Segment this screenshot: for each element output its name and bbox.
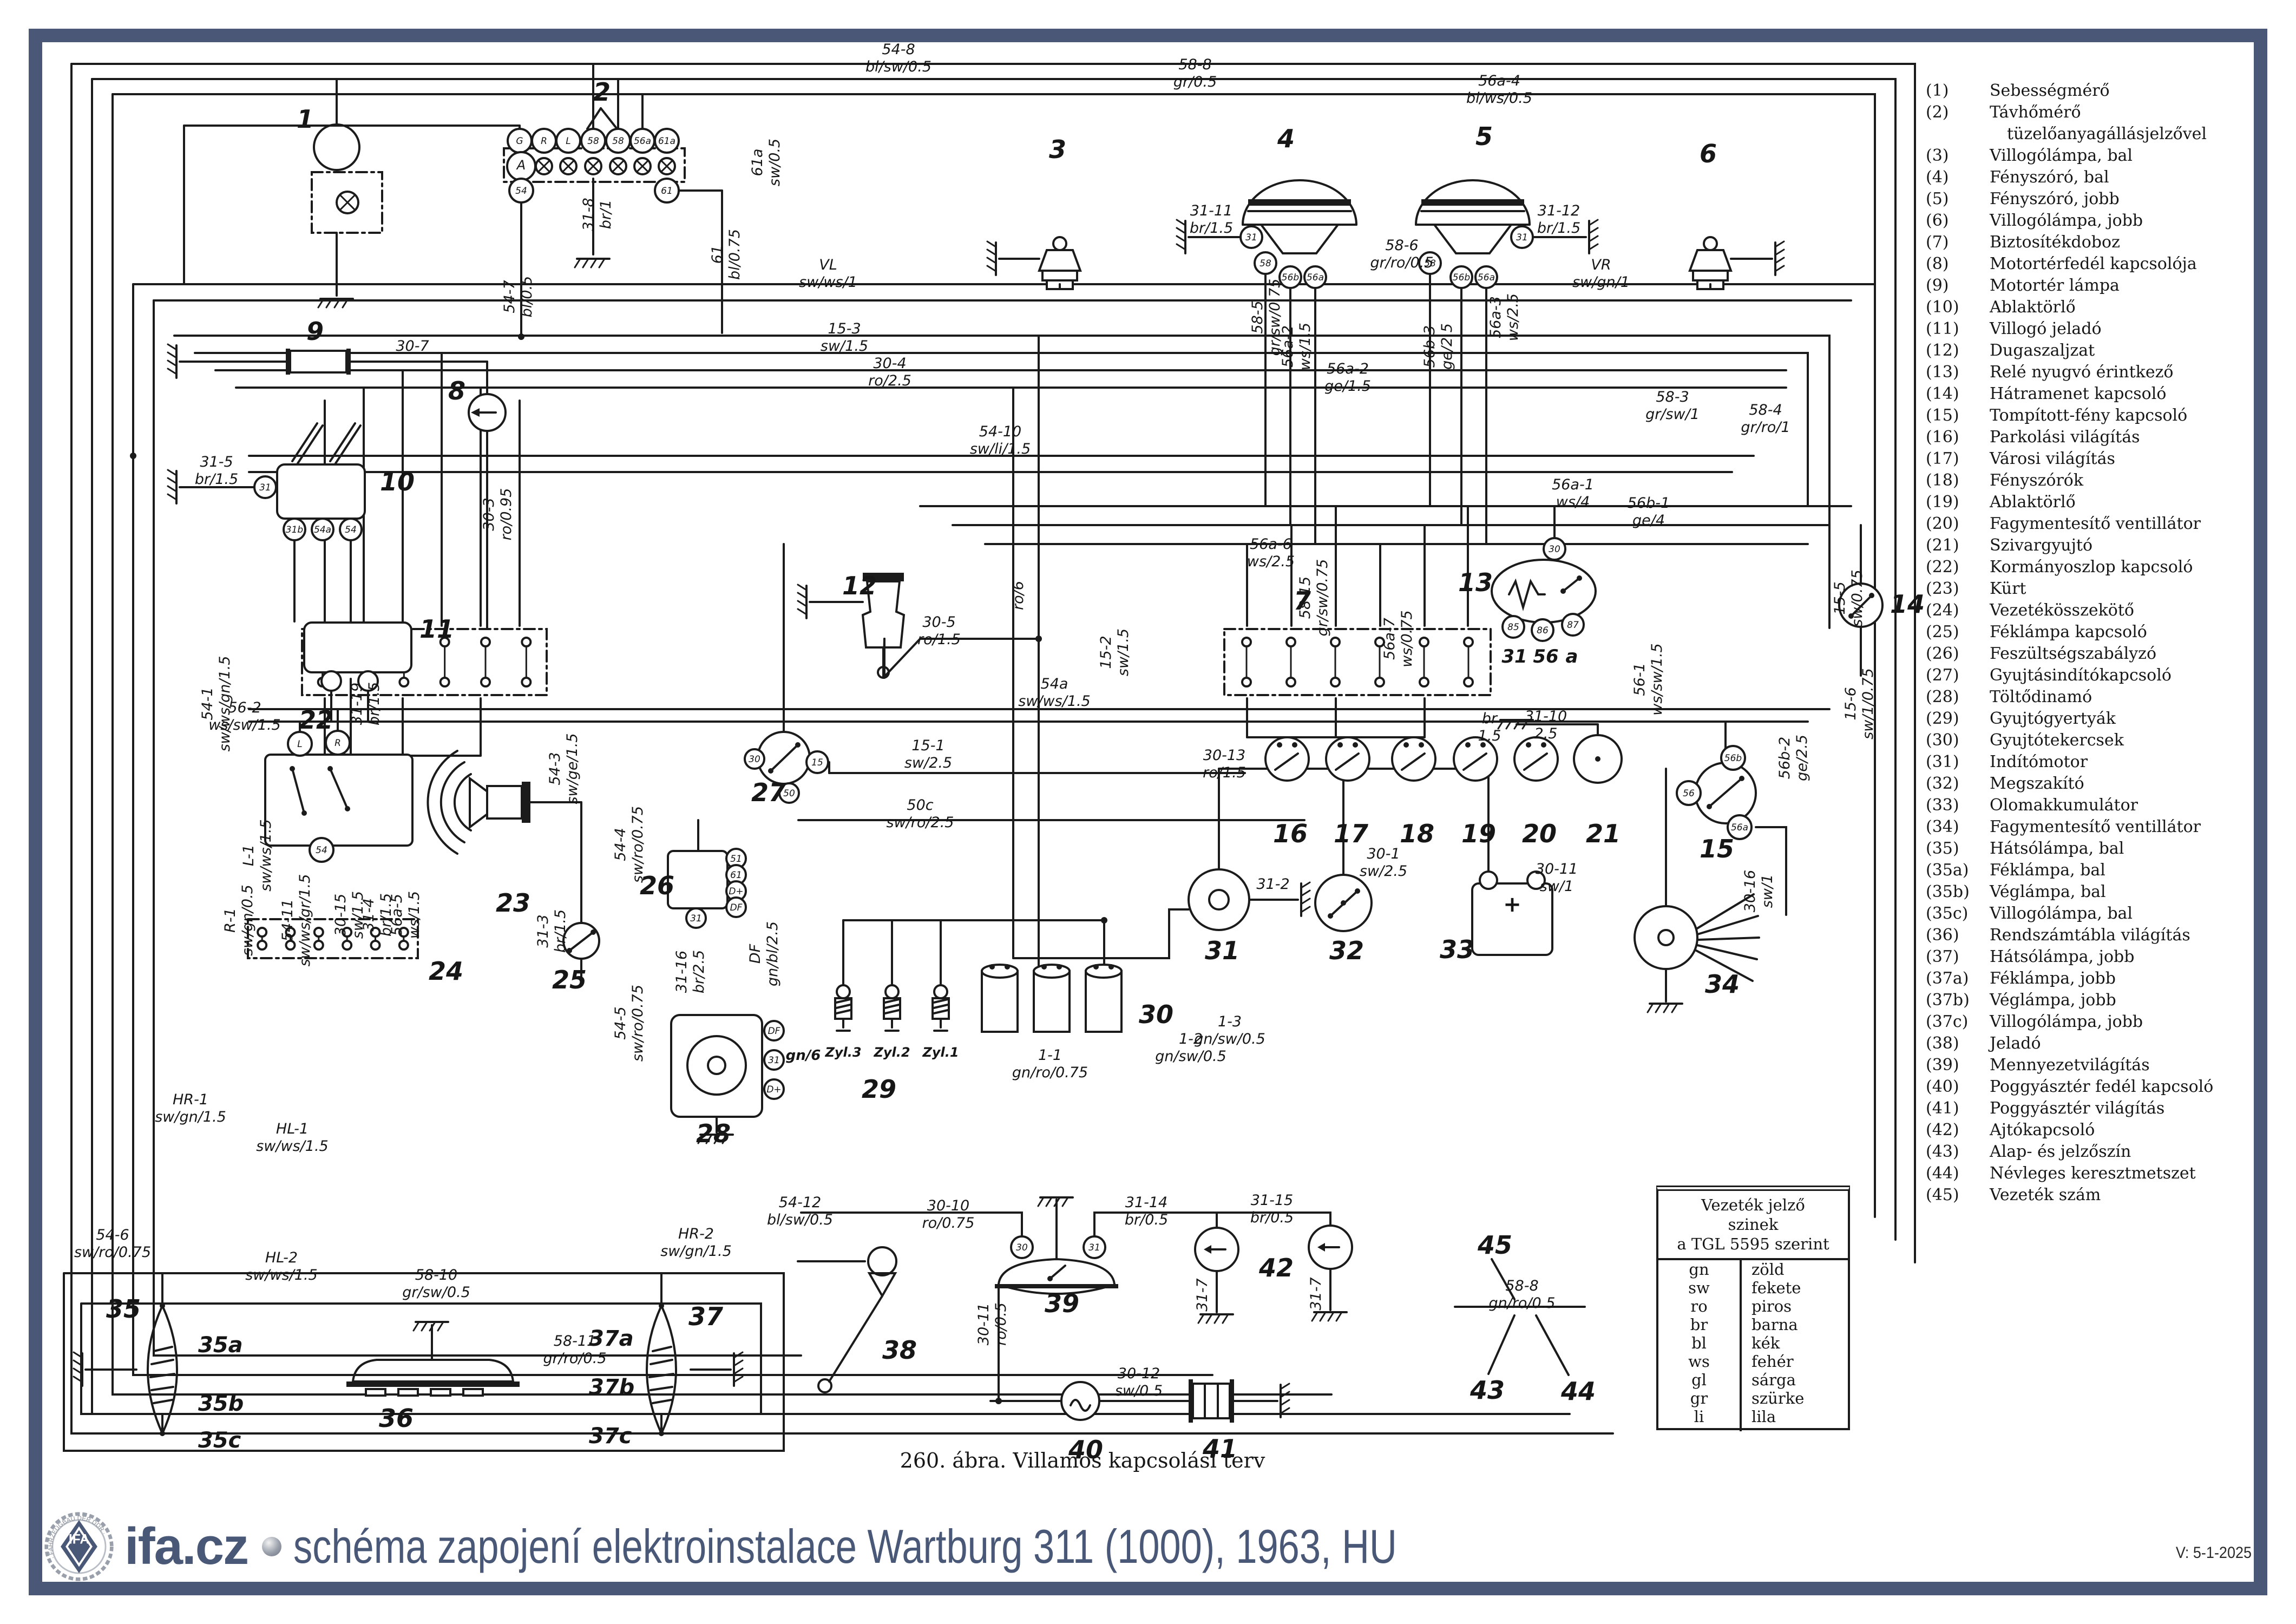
wire-label: 58-3gr/sw/1: [1645, 389, 1700, 423]
wire-label: 15-3sw/1.5: [821, 320, 868, 355]
component-10: 3131b54a5410: [180, 423, 415, 621]
legend-item-number: (35c): [1926, 903, 1990, 925]
legend-item-number: (31): [1926, 751, 1990, 773]
svg-text:ws/2.5: ws/2.5: [1505, 293, 1521, 341]
component-number: 10: [380, 467, 415, 496]
svg-text:ro/0.95: ro/0.95: [498, 488, 515, 541]
svg-text:br/1: br/1: [598, 200, 614, 230]
svg-text:58-6: 58-6: [1385, 237, 1418, 254]
wire-label: 61bl/0.75: [709, 229, 743, 280]
svg-text:gr/sw/1: gr/sw/1: [1645, 406, 1700, 423]
svg-text:br/0.5: br/0.5: [1250, 1209, 1294, 1226]
svg-text:ro/6: ro/6: [1010, 581, 1027, 610]
legend-item-label: Alap- és jelzőszín: [1990, 1141, 2261, 1163]
legend-item-label: Vezeték szám: [1990, 1184, 2261, 1206]
legend-item-number: (26): [1926, 643, 1990, 665]
component-36: 36: [346, 1325, 520, 1433]
svg-text:VL: VL: [819, 257, 837, 273]
legend-item-number: (28): [1926, 686, 1990, 708]
component-17: 17: [1326, 737, 1369, 848]
legend-item-label: Fagymentesítő ventillátor: [1990, 513, 2261, 535]
wire-label: 54-8bl/sw/0.5: [865, 41, 931, 75]
wire-label: 58-6gr/ro/0.5: [1370, 237, 1434, 271]
component-legend: (1)Sebességmérő(2)Távhőmérőtüzelőanyagál…: [1926, 80, 2261, 1206]
legend-item: (2)Távhőmérő: [1926, 102, 2261, 123]
component-15: 5656b56a15: [1677, 746, 1756, 863]
svg-text:30-13: 30-13: [1203, 747, 1245, 764]
component-number: 24: [429, 957, 463, 986]
component-number: 45: [1477, 1230, 1512, 1260]
legend-item-number: (25): [1926, 621, 1990, 643]
legend-item-number: (34): [1926, 816, 1990, 838]
component-6: 6: [1690, 139, 1772, 289]
svg-text:sw/ws/1: sw/ws/1: [799, 274, 857, 291]
svg-text:2.5: 2.5: [1534, 725, 1558, 742]
wire-label: 1-3gn/sw/0.5: [1194, 1013, 1265, 1047]
component-number: 35: [106, 1294, 141, 1324]
legend-item-label: Fagymentesítő ventillátor: [1990, 816, 2261, 838]
wire-label: 54-6sw/ro/0.75: [74, 1227, 151, 1261]
footer-bullet-icon: [262, 1537, 281, 1556]
component-22: LR5422: [265, 679, 412, 862]
legend-item: (15)Tompított-fény kapcsoló: [1926, 405, 2261, 427]
component-27: 30155027: [745, 544, 829, 807]
wire-label: 30-13ro/1.5: [1203, 747, 1246, 781]
wire-label: VLsw/ws/1: [799, 257, 857, 291]
color-abbrev: gn: [1658, 1260, 1740, 1279]
legend-item: (7)Biztosítékdoboz: [1926, 232, 2261, 253]
component-number: 37: [688, 1302, 723, 1331]
svg-text:56a-2: 56a-2: [1280, 325, 1296, 368]
wire: [801, 1213, 1022, 1236]
legend-item-label: Biztosítékdoboz: [1990, 232, 2261, 253]
ifa-logo-text: IFA: [69, 1532, 89, 1547]
wire-label: 56a-2ge/1.5: [1324, 361, 1371, 395]
component-number: 9: [306, 317, 324, 346]
component-number: 38: [882, 1335, 917, 1365]
svg-text:sw/ro/0.75: sw/ro/0.75: [629, 985, 646, 1062]
color-name: fehér: [1740, 1352, 1848, 1371]
legend-item-label: Ablaktörlő: [1990, 492, 2261, 513]
terminal-label: 54: [316, 845, 327, 856]
component-number: 27: [751, 778, 786, 807]
legend-item: (20)Fagymentesítő ventillátor: [1926, 513, 2261, 535]
terminal-label: 87: [1567, 620, 1579, 631]
wire-label: 58-5gr/sw/0.75: [1249, 279, 1283, 356]
legend-item-label: tüzelőanyagállásjelzővel: [2007, 123, 2261, 145]
svg-text:VR: VR: [1591, 257, 1611, 273]
legend-item-number: (45): [1926, 1184, 1990, 1206]
svg-text:1-3: 1-3: [1218, 1013, 1242, 1030]
svg-text:31-7: 31-7: [1194, 1278, 1211, 1311]
legend-item-number: (30): [1926, 730, 1990, 751]
svg-text:56a-7: 56a-7: [1381, 618, 1398, 660]
wire-label: 56-1ws/sw/1.5: [1631, 643, 1665, 715]
figure-caption: 260. ábra. Villamos kapcsolási terv: [834, 1449, 1331, 1472]
wire-label: 31-7: [1194, 1278, 1211, 1311]
component-number: 42: [1258, 1253, 1294, 1282]
svg-text:56b-1: 56b-1: [1628, 495, 1670, 512]
component-number: 35c: [198, 1428, 241, 1453]
svg-text:gr/sw/0.5: gr/sw/0.5: [402, 1284, 470, 1301]
svg-text:HL-1: HL-1: [276, 1121, 309, 1137]
svg-text:30-11: 30-11: [975, 1303, 992, 1345]
terminal-label: L: [566, 136, 570, 147]
color-name: sárga: [1740, 1371, 1848, 1389]
terminal-label: 54: [515, 186, 527, 197]
wire-label: 58-4gr/ro/1: [1741, 402, 1790, 436]
component-text: Zyl.3: [824, 1045, 861, 1060]
wire-label: L-1sw/ws/1.5: [240, 819, 274, 891]
legend-item-label: Poggyásztér világítás: [1990, 1098, 2261, 1119]
legend-item: (26)Feszültségszabályzó: [1926, 643, 2261, 665]
terminal-label: 31b: [286, 525, 303, 535]
wall-ground-icon: [1301, 882, 1310, 916]
legend-item-number: (18): [1926, 470, 1990, 492]
legend-item: (9)Motortér lámpa: [1926, 275, 2261, 297]
component-35b: 35b: [198, 1391, 244, 1416]
scanned-page: 1GRL585856a61aA546123315856b56a45856b56a…: [0, 0, 2296, 1624]
footer-site[interactable]: ifa.cz: [124, 1517, 248, 1576]
terminal-label: 56b: [1453, 272, 1470, 283]
component-number: 3: [1049, 135, 1066, 164]
svg-text:sw/ro/0.75: sw/ro/0.75: [74, 1244, 151, 1261]
svg-text:58-11: 58-11: [554, 1333, 596, 1350]
svg-text:HR-2: HR-2: [678, 1226, 714, 1242]
wire-label: 50csw/ro/2.5: [887, 797, 954, 831]
component-37: 37: [647, 1302, 731, 1436]
component-number: 29: [862, 1075, 896, 1104]
color-name: kék: [1740, 1334, 1848, 1352]
svg-text:br/1.5: br/1.5: [552, 909, 569, 953]
svg-text:31-3: 31-3: [535, 914, 552, 947]
wire-label: VRsw/gn/1: [1572, 257, 1630, 291]
svg-text:54-10: 54-10: [979, 423, 1021, 440]
legend-item: (45)Vezeték szám: [1926, 1184, 2261, 1206]
terminal-label: 51: [730, 854, 742, 865]
legend-item: (37c)Villogólámpa, jobb: [1926, 1011, 2261, 1033]
legend-item-label: Tompított-fény kapcsoló: [1990, 405, 2261, 427]
wire-label: 30-11ro/0.5: [975, 1302, 1009, 1346]
svg-text:sw/2.5: sw/2.5: [904, 755, 952, 771]
terminal-label: L: [297, 739, 302, 750]
wall-ground-icon: [987, 241, 996, 275]
wire-label: 30-1sw/2.5: [1360, 846, 1407, 880]
component-number: 35a: [198, 1333, 243, 1358]
wire-label: 30-5ro/1.5: [917, 614, 961, 648]
wire-label: R-1sw/gn/0.5: [222, 885, 256, 956]
legend-item: (3)Villogólámpa, bal: [1926, 145, 2261, 167]
color-table-row: lilila: [1658, 1407, 1848, 1426]
terminal-label: 56a: [1478, 272, 1495, 283]
legend-item: (44)Névleges keresztmetszet: [1926, 1163, 2261, 1184]
wire-label: 56b-1ge/4: [1628, 495, 1670, 529]
wire-label: 30-12sw/0.5: [1115, 1365, 1163, 1399]
component-18: 18: [1392, 737, 1435, 848]
legend-item-number: (5): [1926, 188, 1990, 210]
component-number: 25: [552, 965, 587, 994]
legend-item-label: Hátsólámpa, bal: [1990, 838, 2261, 860]
color-name: barna: [1740, 1315, 1848, 1334]
svg-text:15-1: 15-1: [911, 737, 944, 754]
svg-text:15-6: 15-6: [1842, 687, 1859, 720]
table-title-line: a TGL 5595 szerint: [1658, 1234, 1848, 1254]
legend-item-label: Féklámpa kapcsoló: [1990, 621, 2261, 643]
component-number: 20: [1522, 819, 1557, 848]
wire-label: 31-5br/1.5: [195, 454, 238, 488]
wire-label: 30-7: [396, 338, 429, 355]
svg-text:sw/ws/gr/1.5: sw/ws/gr/1.5: [297, 874, 313, 967]
legend-item-label: Városi világítás: [1990, 448, 2261, 470]
legend-item-number: (15): [1926, 405, 1990, 427]
wire-label: 56a-4bl/ws/0.5: [1466, 73, 1532, 107]
svg-text:56a-6: 56a-6: [1250, 536, 1292, 553]
wall-ground-icon: [1177, 220, 1185, 253]
legend-item-number: (24): [1926, 600, 1990, 621]
terminal-x: [322, 671, 341, 691]
legend-item: (1)Sebességmérő: [1926, 80, 2261, 102]
component-8: 8: [448, 362, 506, 629]
wire-label: 54-12bl/sw/0.5: [767, 1194, 833, 1228]
component-39: 303139: [995, 1200, 1118, 1318]
component-number: 15: [1700, 834, 1734, 863]
svg-text:bl/sw/0.5: bl/sw/0.5: [767, 1212, 833, 1228]
legend-item: (35)Hátsólámpa, bal: [1926, 838, 2261, 860]
svg-text:31-4: 31-4: [360, 898, 377, 931]
svg-text:56-1: 56-1: [1631, 663, 1648, 696]
table-title-line: szinek: [1658, 1215, 1848, 1234]
svg-text:sw/1.5: sw/1.5: [821, 338, 868, 355]
wire-label: 30-10ro/0.75: [922, 1197, 975, 1232]
terminal-label: 61a: [658, 136, 675, 147]
svg-text:ws/sw/1.5: ws/sw/1.5: [1649, 643, 1665, 715]
svg-text:15-3: 15-3: [828, 320, 861, 337]
legend-item-number: (9): [1926, 275, 1990, 297]
wire-label: 30-16sw/1: [1742, 870, 1776, 912]
component-20: 20: [1514, 737, 1558, 848]
ground-icon: [575, 259, 609, 267]
svg-text:br/2.5: br/2.5: [691, 950, 707, 993]
legend-item: (16)Parkolási világítás: [1926, 427, 2261, 448]
terminal-label: R: [541, 136, 547, 147]
svg-text:bl/0.5: bl/0.5: [519, 276, 535, 318]
svg-text:gr/ro/0.5: gr/ro/0.5: [543, 1350, 607, 1367]
legend-item: (37)Hátsólámpa, jobb: [1926, 946, 2261, 968]
component-number: 39: [1045, 1289, 1079, 1318]
legend-item: (17)Városi világítás: [1926, 448, 2261, 470]
table-divider: [1740, 1260, 1742, 1431]
wire-label: HL-1sw/ws/1.5: [256, 1121, 328, 1155]
legend-item-label: Véglámpa, bal: [1990, 881, 2261, 903]
legend-item-number: (35): [1926, 838, 1990, 860]
component-35c: 35c: [198, 1428, 241, 1453]
wire-label: 31-14br/0.5: [1125, 1194, 1168, 1228]
color-abbrev: gl: [1658, 1371, 1740, 1389]
legend-item-label: Hátramenet kapcsoló: [1990, 383, 2261, 405]
component-number: 22: [299, 705, 333, 735]
color-abbrev: gr: [1658, 1389, 1740, 1407]
footer: IFA · FAHRZEUGBAU DER DDR · ifa.cz schém…: [43, 1506, 1673, 1587]
wire-label: 15-6sw/1/0.75: [1842, 668, 1877, 739]
terminal-label: DF: [768, 1026, 780, 1037]
legend-item-number: (37b): [1926, 990, 1990, 1011]
terminal-label: DF: [730, 902, 743, 913]
legend-item-number: (4): [1926, 167, 1990, 188]
component-number: 34: [1705, 970, 1740, 999]
svg-text:31-16: 31-16: [673, 951, 690, 993]
legend-item: (39)Mennyezetvilágítás: [1926, 1055, 2261, 1076]
svg-text:54-4: 54-4: [612, 828, 629, 861]
svg-text:sw/2.5: sw/2.5: [1360, 863, 1407, 880]
wire-label: 1-1gn/ro/0.75: [1012, 1047, 1088, 1081]
svg-text:sw/0.5: sw/0.5: [1115, 1383, 1163, 1399]
legend-item-label: Relé nyugvó érintkező: [1990, 362, 2261, 383]
terminal-label: 56b: [1282, 272, 1299, 283]
legend-item-number: (20): [1926, 513, 1990, 535]
terminal-label: 31: [1088, 1242, 1100, 1253]
legend-item: (28)Töltődinamó: [1926, 686, 2261, 708]
legend-item-number: (22): [1926, 556, 1990, 578]
svg-text:56b-2: 56b-2: [1776, 737, 1793, 779]
wire-label: 56a-3ws/2.5: [1487, 293, 1521, 341]
terminal-label: 15: [811, 757, 823, 768]
svg-text:30-12: 30-12: [1118, 1365, 1160, 1382]
legend-item: (43)Alap- és jelzőszín: [1926, 1141, 2261, 1163]
component-number: 2: [593, 77, 611, 107]
svg-text:sw/gn/0.5: sw/gn/0.5: [239, 885, 256, 956]
wall-ground-icon: [168, 470, 176, 503]
svg-text:ro/0.75: ro/0.75: [922, 1215, 975, 1232]
legend-item-label: Sebességmérő: [1990, 80, 2261, 102]
component-number: 17: [1334, 819, 1368, 848]
svg-text:gr/sw/0.75: gr/sw/0.75: [1314, 559, 1331, 637]
legend-item-number: (33): [1926, 795, 1990, 816]
color-abbrev: ro: [1658, 1297, 1740, 1315]
legend-item-label: Megszakító: [1990, 773, 2261, 795]
svg-text:sw/0.75: sw/0.75: [1849, 569, 1866, 626]
wire-label: 56b-2ge/2.5: [1776, 735, 1810, 781]
wire-label: HR-2sw/gn/1.5: [660, 1226, 732, 1260]
legend-item-label: Villogólámpa, jobb: [1990, 210, 2261, 232]
wire-label: 54-10sw/li/1.5: [970, 423, 1031, 457]
svg-text:54-11: 54-11: [279, 899, 296, 941]
wall-ground-icon: [734, 1352, 743, 1386]
legend-item: (6)Villogólámpa, jobb: [1926, 210, 2261, 232]
wire-label: 54-4sw/ro/0.75: [612, 806, 646, 883]
legend-item-number: (37c): [1926, 1011, 1990, 1033]
svg-text:sw/ro/0.75: sw/ro/0.75: [629, 806, 646, 883]
legend-item-label: Fényszórók: [1990, 470, 2261, 492]
svg-text:sw/ws/1.5: sw/ws/1.5: [245, 1267, 317, 1284]
legend-item: (5)Fényszóró, jobb: [1926, 188, 2261, 210]
legend-item: (36)Rendszámtábla világítás: [1926, 925, 2261, 946]
svg-text:54-6: 54-6: [96, 1227, 129, 1243]
svg-text:56a-2: 56a-2: [1327, 361, 1369, 377]
legend-item-number: (23): [1926, 578, 1990, 600]
svg-text:58-4: 58-4: [1749, 402, 1782, 418]
legend-item-label: Véglámpa, jobb: [1990, 990, 2261, 1011]
wire-label: 15-2sw/1.5: [1098, 628, 1132, 676]
legend-item: (38)Jeladó: [1926, 1033, 2261, 1055]
wire-label: 56b-3ge/2.5: [1421, 323, 1455, 370]
legend-item: (23)Kürt: [1926, 578, 2261, 600]
wire-label: 61asw/0.5: [749, 139, 783, 186]
svg-text:gn/ro/0.5: gn/ro/0.5: [1488, 1295, 1555, 1312]
svg-text:54-1: 54-1: [199, 687, 216, 720]
svg-text:58-3: 58-3: [1656, 389, 1689, 405]
wire-label: 54-1sw/ws/gn/1.5: [199, 656, 233, 752]
component-text: 56: [1533, 646, 1558, 667]
component-number: 6: [1700, 139, 1717, 168]
legend-item-label: Vezetékösszekötő: [1990, 600, 2261, 621]
svg-text:58-15: 58-15: [1297, 577, 1314, 619]
legend-item-label: Névleges keresztmetszet: [1990, 1163, 2261, 1184]
legend-item: (37a)Féklámpa, jobb: [1926, 968, 2261, 990]
svg-text:sw/1/0.75: sw/1/0.75: [1860, 668, 1877, 739]
wire-label: 31-3br/1.5: [535, 909, 569, 953]
svg-text:gn/sw/0.5: gn/sw/0.5: [1155, 1048, 1226, 1065]
color-name: fekete: [1740, 1279, 1848, 1297]
color-name: szürke: [1740, 1389, 1848, 1407]
legend-item-label: Töltődinamó: [1990, 686, 2261, 708]
legend-item-number: (37a): [1926, 968, 1990, 990]
legend-item-number: (2): [1926, 102, 1990, 123]
legend-item: (34)Fagymentesítő ventillátor: [1926, 816, 2261, 838]
svg-text:sw/1: sw/1: [1759, 874, 1776, 908]
legend-item: (24)Vezetékösszekötő: [1926, 600, 2261, 621]
svg-text:54-7: 54-7: [501, 280, 518, 313]
legend-item-number: (16): [1926, 427, 1990, 448]
color-name: zöld: [1740, 1260, 1848, 1279]
component-number: 23: [496, 888, 530, 918]
wall-ground-icon: [1589, 220, 1598, 253]
terminal-label: 86: [1537, 625, 1549, 636]
component-text: a: [1566, 646, 1578, 667]
wire-label: br1.5: [1478, 710, 1501, 744]
terminal-x: [1480, 872, 1497, 889]
svg-text:sw/ge/1.5: sw/ge/1.5: [564, 733, 581, 804]
legend-item-label: Jeladó: [1990, 1033, 2261, 1055]
wire-label: DFgn/bl/2.5: [747, 921, 781, 986]
color-table-row: gnzöld: [1658, 1260, 1848, 1279]
wire-label: 54asw/ws/1.5: [1018, 676, 1090, 710]
wire-label: 31-15br/0.5: [1250, 1192, 1294, 1226]
svg-text:54-12: 54-12: [779, 1194, 821, 1211]
wire-color-table: Vezeték jelző szinek a TGL 5595 szerint …: [1656, 1186, 1850, 1430]
component-number: 43: [1470, 1376, 1505, 1405]
component-19: 19: [1454, 737, 1497, 848]
version-stamp: V: 5-1-2025: [2140, 1544, 2252, 1562]
component-37b: 37b: [589, 1375, 634, 1400]
ground-icon: [1198, 1314, 1233, 1323]
svg-text:sw/ws/1.5: sw/ws/1.5: [1018, 693, 1090, 710]
component-number: 37b: [589, 1375, 634, 1400]
legend-item-label: Olomakkumulátor: [1990, 795, 2261, 816]
component-number: 32: [1329, 936, 1364, 965]
svg-text:61a: 61a: [749, 149, 766, 176]
svg-text:br/1.5: br/1.5: [366, 682, 383, 725]
color-abbrev: ws: [1658, 1352, 1740, 1371]
wire-label: HR-1sw/gn/1.5: [155, 1091, 226, 1125]
legend-item-label: Kürt: [1990, 578, 2261, 600]
terminal-label: 58: [612, 136, 624, 147]
svg-text:br/1.5: br/1.5: [1537, 220, 1580, 237]
svg-text:30-3: 30-3: [481, 497, 497, 531]
legend-item-number: (29): [1926, 708, 1990, 730]
legend-item-number: (27): [1926, 665, 1990, 686]
color-abbrev: li: [1658, 1407, 1740, 1426]
wire-color-table-title: Vezeték jelző szinek a TGL 5595 szerint: [1658, 1191, 1848, 1260]
